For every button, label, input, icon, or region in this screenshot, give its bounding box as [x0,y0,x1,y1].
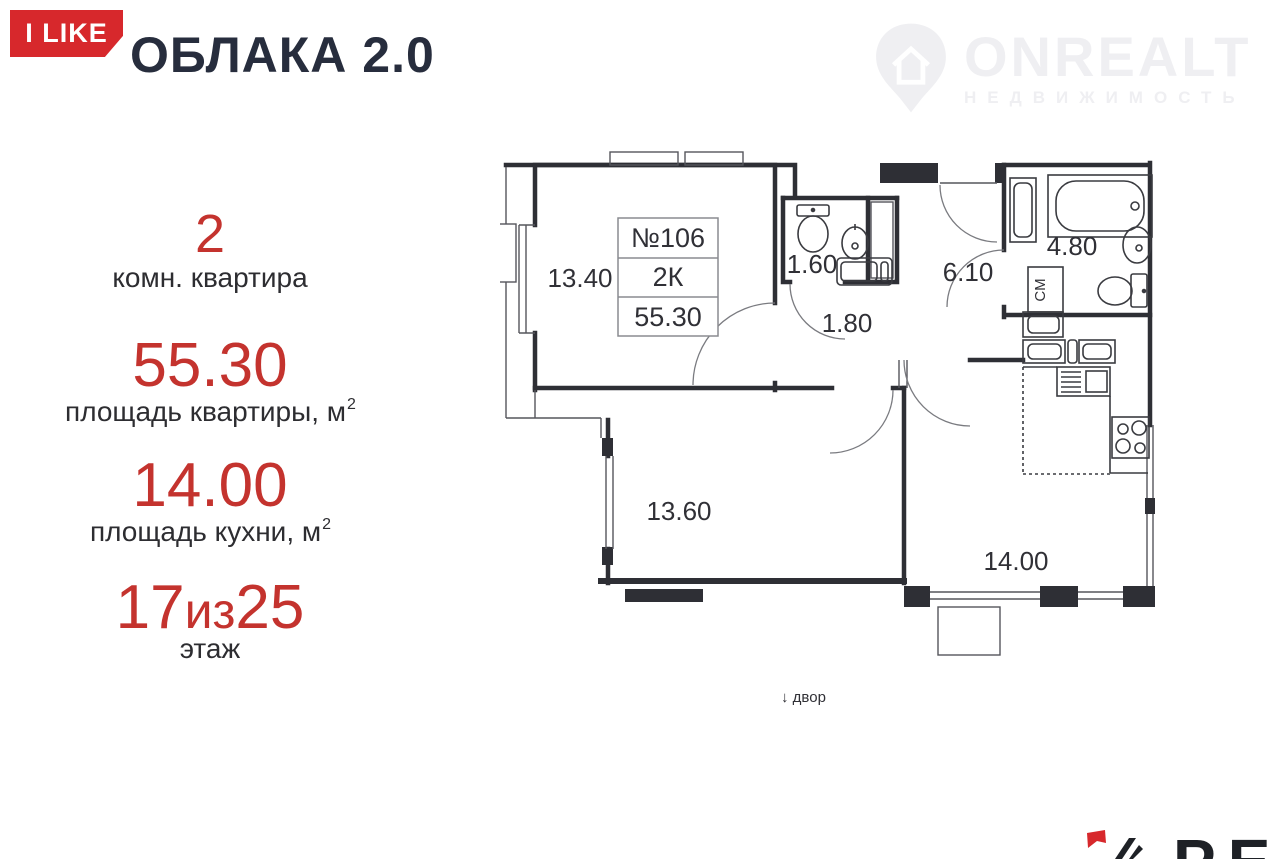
apartment-type: 2К [653,262,684,292]
label-corridor: 6.10 [943,257,994,287]
floor-label: этаж [40,633,380,665]
house-pin-icon [872,22,950,114]
rooms-count: 2 [40,203,380,265]
label-room1: 13.40 [547,263,612,293]
bath-sink-icon [1123,227,1151,263]
label-room2: 13.60 [646,496,711,526]
counter-dashed [1023,367,1110,474]
toilet-icon [797,205,829,252]
kitchen-area-label: площадь кухни, м2 [40,516,380,548]
partner-logo: РЕД [1085,830,1280,859]
wc-cabinet-icon [837,258,892,285]
project-title: ОБЛАКА 2.0 [130,26,435,84]
apartment-area-text: площадь квартиры, м [65,396,346,427]
floor-separator: из [185,583,236,639]
label-wc: 1.60 [787,249,838,279]
label-washing-machine: СМ [1032,278,1049,301]
floor-plan: №106 2К 55.30 13.40 1.60 1.80 6.10 4.80 … [500,140,1160,720]
watermark-tagline: НЕДВИЖИМОСТЬ [964,88,1252,108]
floor-current: 17 [116,573,185,642]
apartment-area-label: площадь квартиры, м2 [40,396,380,428]
stove-icon [1112,417,1149,458]
apartment-area-sup: 2 [347,396,356,413]
bath-toilet-icon [1098,274,1147,307]
yard-direction-label: ↓ двор [781,689,826,706]
kitchen-area-sup: 2 [322,516,331,533]
watermark-brand: ONREALT [964,28,1252,86]
apartment-area-value: 55.30 [40,330,380,401]
wc-sink-icon [842,224,868,259]
floor-total: 25 [235,573,304,642]
onrealt-watermark: ONREALT НЕДВИЖИМОСТЬ [872,22,1252,114]
ilike-badge: I LIKE [10,10,123,57]
flyer-page: I LIKE ОБЛАКА 2.0 ONREALT НЕДВИЖИМОСТЬ 2… [0,0,1280,859]
label-kitchen-living: 14.00 [983,546,1048,576]
apartment-area: 55.30 [634,302,702,332]
bath-cabinet-icon [1010,178,1036,242]
info-table: №106 2К 55.30 [618,218,718,336]
partner-logo-mark-icon [1085,830,1145,859]
label-bathroom: 4.80 [1047,231,1098,261]
partner-logo-text: РЕД [1173,830,1280,859]
kitchen-area-text: площадь кухни, м [90,516,321,547]
apartment-number: №106 [631,223,705,253]
kitchen-cabinets-icon [1023,312,1115,363]
thick-walls [506,163,1150,583]
label-hall: 1.80 [822,308,873,338]
kitchen-area-value: 14.00 [40,450,380,521]
rooms-label: комн. квартира [40,262,380,294]
kitchen-sink-icon [1057,367,1110,396]
